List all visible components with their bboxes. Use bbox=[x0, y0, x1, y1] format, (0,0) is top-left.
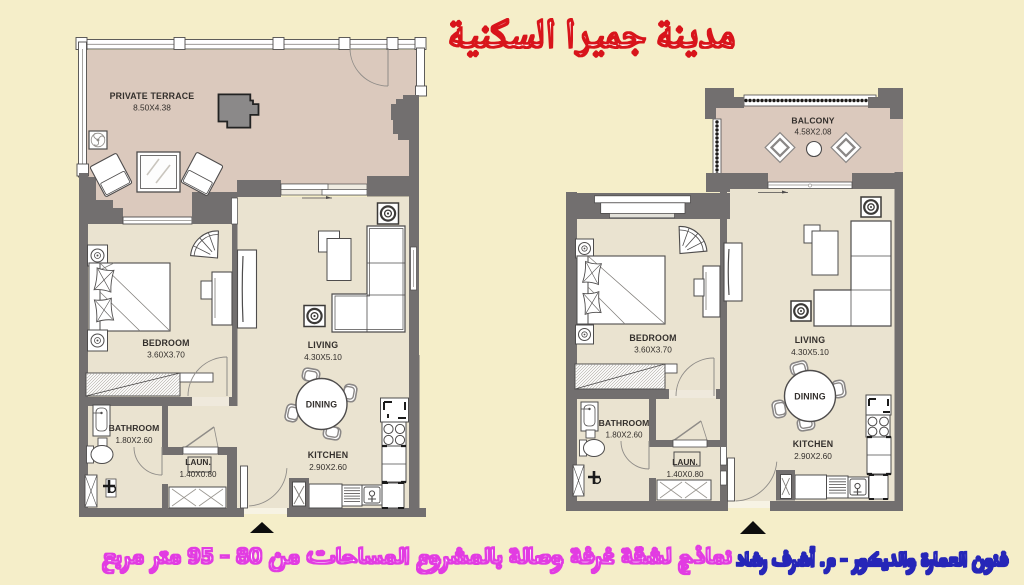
svg-text:3.60X3.70: 3.60X3.70 bbox=[147, 350, 185, 360]
svg-text:1.80X2.60: 1.80X2.60 bbox=[606, 431, 643, 440]
svg-text:1.40X0.80: 1.40X0.80 bbox=[180, 470, 217, 479]
svg-text:LIVING: LIVING bbox=[308, 340, 339, 350]
svg-text:BATHROOM: BATHROOM bbox=[599, 418, 650, 428]
svg-text:KITCHEN: KITCHEN bbox=[308, 450, 349, 460]
svg-text:DINING: DINING bbox=[794, 392, 825, 402]
svg-text:3.60X3.70: 3.60X3.70 bbox=[634, 345, 672, 355]
svg-text:4.30X5.10: 4.30X5.10 bbox=[304, 352, 342, 362]
svg-text:LIVING: LIVING bbox=[795, 335, 826, 345]
svg-text:8.50X4.38: 8.50X4.38 bbox=[133, 103, 171, 113]
svg-text:BALCONY: BALCONY bbox=[791, 116, 834, 126]
svg-text:KITCHEN: KITCHEN bbox=[793, 439, 834, 449]
svg-text:BATHROOM: BATHROOM bbox=[109, 423, 160, 433]
svg-text:DINING: DINING bbox=[306, 400, 337, 410]
svg-text:2.90X2.60: 2.90X2.60 bbox=[794, 451, 832, 461]
svg-text:4.30X5.10: 4.30X5.10 bbox=[791, 347, 829, 357]
svg-text:BEDROOM: BEDROOM bbox=[142, 338, 189, 348]
svg-text:2.90X2.60: 2.90X2.60 bbox=[309, 462, 347, 472]
svg-text:PRIVATE TERRACE: PRIVATE TERRACE bbox=[110, 91, 195, 101]
svg-text:1.40X0.80: 1.40X0.80 bbox=[667, 470, 704, 479]
svg-text:LAUN.: LAUN. bbox=[672, 457, 698, 467]
svg-text:1.80X2.60: 1.80X2.60 bbox=[116, 436, 153, 445]
svg-text:4.58X2.08: 4.58X2.08 bbox=[795, 128, 832, 137]
svg-text:LAUN.: LAUN. bbox=[185, 457, 211, 467]
svg-text:BEDROOM: BEDROOM bbox=[629, 333, 676, 343]
